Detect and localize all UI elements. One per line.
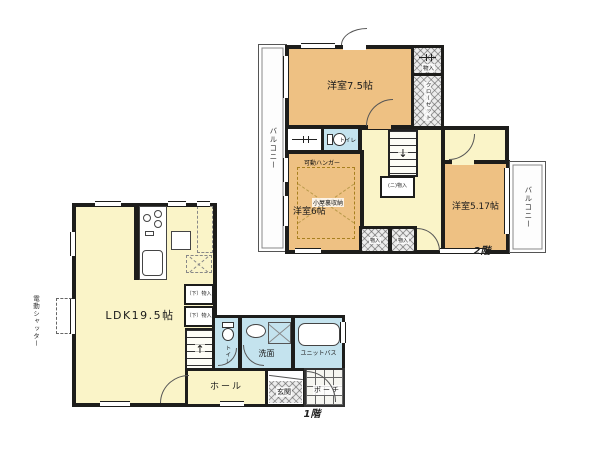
movable-hanger-label: 可動ハンガー bbox=[303, 158, 341, 167]
storage-ni: (ニ)物入 bbox=[380, 176, 415, 198]
bedroom-5-17: 洋室5.17帖 bbox=[441, 160, 510, 254]
kitchen-island bbox=[171, 231, 191, 250]
closet-tall: クローゼット bbox=[411, 73, 444, 130]
stove-burner-icon bbox=[143, 214, 151, 222]
bedroom-7-5: 洋室7.5帖 bbox=[285, 45, 415, 129]
window bbox=[340, 322, 346, 343]
kitchen-sink bbox=[142, 250, 163, 276]
pantry-space bbox=[186, 255, 212, 273]
stairs-1f: ↑ bbox=[185, 328, 215, 371]
bedroom-6-label: 洋室6帖 bbox=[293, 207, 326, 217]
storage-top-right: 物入 bbox=[411, 45, 444, 76]
window bbox=[70, 232, 76, 256]
stairs-down-arrow-icon: ↓ bbox=[398, 148, 407, 159]
stove-burner-icon bbox=[154, 220, 162, 228]
door-opening bbox=[368, 124, 391, 129]
storage-shita-1: （下）物入 bbox=[184, 284, 214, 305]
toilet-2f-label: トイレ bbox=[338, 136, 357, 144]
ldk-label: LDK19.5帖 bbox=[90, 310, 190, 323]
bedroom-7-5-label: 洋室7.5帖 bbox=[327, 81, 373, 93]
hanger-rod-icon bbox=[290, 134, 319, 144]
washer-pan-icon bbox=[268, 322, 291, 344]
entrance: 玄関 bbox=[265, 368, 306, 407]
shutter-guide-line bbox=[56, 298, 57, 334]
window bbox=[70, 299, 76, 334]
washroom: 洗面 bbox=[239, 315, 294, 371]
door-arc bbox=[341, 28, 367, 45]
window bbox=[197, 201, 210, 207]
entrance-label: 玄関 bbox=[276, 387, 292, 397]
attic-storage-label: 小屋裏収納 bbox=[312, 198, 344, 207]
toilet-icon bbox=[220, 322, 236, 342]
storage-ni-label: (ニ)物入 bbox=[388, 184, 407, 190]
hanger-rod-icon bbox=[417, 52, 438, 62]
storage-shita-2-label: （下）物入 bbox=[186, 314, 211, 320]
bedroom-6: 可動ハンガー 小屋裏収納 洋室6帖 bbox=[285, 150, 364, 254]
window bbox=[283, 158, 289, 182]
storage-bottom-1-label: 物入 bbox=[369, 237, 381, 244]
unit-bath-label: ユニットバス bbox=[295, 351, 342, 358]
balcony-right-label: バルコニー bbox=[523, 186, 532, 229]
entrance-step-line bbox=[269, 375, 303, 380]
window bbox=[168, 201, 186, 207]
window bbox=[100, 401, 130, 407]
hanger-closet bbox=[285, 126, 324, 153]
window bbox=[95, 201, 121, 207]
window bbox=[283, 196, 289, 226]
electric-shutter-label: 電動シャッター bbox=[31, 284, 38, 358]
window bbox=[220, 401, 244, 407]
door-opening bbox=[343, 45, 366, 50]
window bbox=[283, 56, 289, 98]
floor-plan-canvas: バルコニー 洋室7.5帖 物入 クローゼット トイレ ↓ bbox=[0, 0, 600, 449]
window bbox=[504, 168, 510, 234]
storage-bottom-2: 物入 bbox=[389, 226, 417, 254]
second-floor-label: 2階 bbox=[460, 246, 504, 258]
storage-shita-2: （下）物入 bbox=[184, 306, 214, 327]
stairs-up-arrow-icon: ↑ bbox=[195, 344, 204, 355]
closet-tall-label: クローゼット bbox=[424, 82, 430, 121]
stairs-2f: ↓ bbox=[388, 129, 418, 177]
toilet-2f: トイレ bbox=[321, 126, 361, 153]
washbasin-icon bbox=[246, 324, 266, 338]
grill-icon bbox=[145, 231, 154, 236]
refrigerator-space bbox=[197, 206, 213, 253]
window bbox=[295, 248, 321, 254]
door-opening bbox=[452, 160, 474, 165]
window bbox=[301, 43, 335, 49]
storage-shita-1-label: （下）物入 bbox=[186, 292, 211, 298]
unit-bath: ユニットバス bbox=[292, 315, 345, 371]
kitchen-counter bbox=[139, 206, 167, 280]
balcony-left-label: バルコニー bbox=[268, 127, 277, 170]
first-floor-label: 1階 bbox=[290, 409, 334, 421]
storage-bottom-2-label: 物入 bbox=[397, 237, 409, 244]
balcony-right: バルコニー bbox=[509, 161, 546, 253]
storage-bottom-1: 物入 bbox=[359, 226, 391, 254]
bathtub-icon bbox=[298, 323, 340, 346]
bedroom-5-17-label: 洋室5.17帖 bbox=[452, 202, 499, 212]
stove-burner-icon bbox=[154, 210, 162, 218]
hall-label: ホール bbox=[210, 382, 243, 392]
storage-top-right-label: 物入 bbox=[422, 64, 435, 72]
